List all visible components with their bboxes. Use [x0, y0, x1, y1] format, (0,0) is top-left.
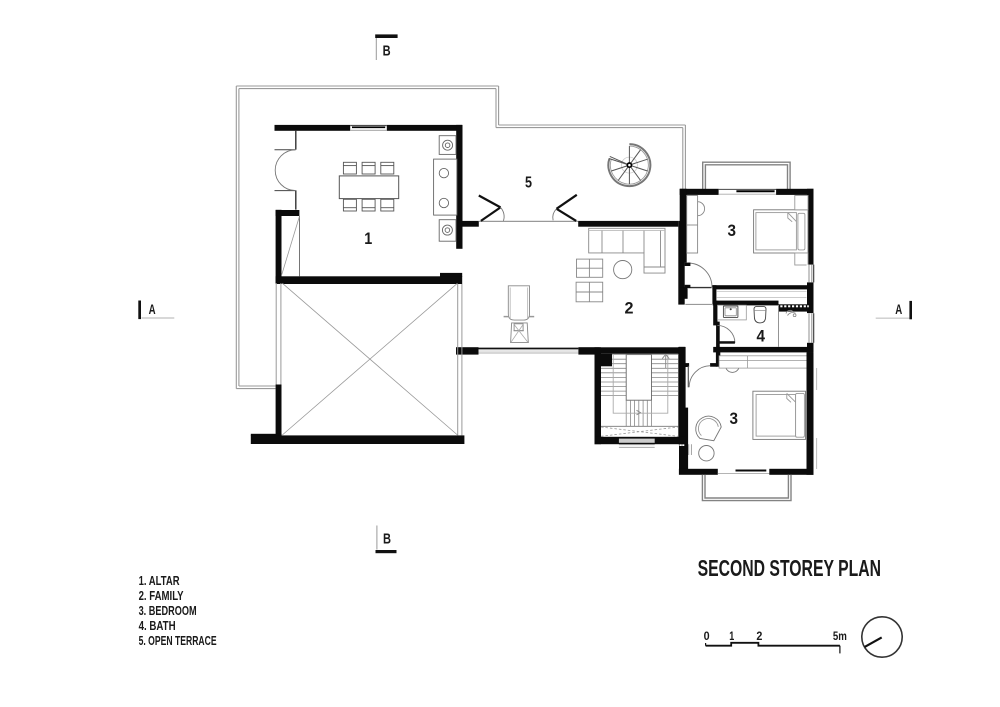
svg-text:2: 2 — [756, 631, 762, 643]
svg-text:3: 3 — [730, 410, 739, 428]
svg-text:5. OPEN TERRACE: 5. OPEN TERRACE — [139, 634, 217, 648]
svg-text:1: 1 — [729, 631, 734, 643]
svg-text:A: A — [895, 301, 902, 317]
svg-text:2: 2 — [625, 300, 634, 318]
svg-text:3: 3 — [728, 222, 737, 240]
svg-text:A: A — [149, 301, 156, 317]
svg-text:2. FAMILY: 2. FAMILY — [139, 589, 184, 603]
svg-text:B: B — [383, 531, 391, 548]
svg-text:1: 1 — [364, 230, 372, 248]
svg-text:4: 4 — [757, 328, 766, 346]
svg-text:5: 5 — [525, 175, 532, 192]
svg-text:3. BEDROOM: 3. BEDROOM — [139, 604, 197, 618]
svg-text:0: 0 — [704, 631, 710, 643]
svg-text:5m: 5m — [833, 631, 847, 643]
svg-text:B: B — [383, 43, 391, 60]
svg-text:1. ALTAR: 1. ALTAR — [139, 574, 180, 588]
svg-text:4. BATH: 4. BATH — [139, 619, 176, 633]
svg-text:SECOND STOREY PLAN: SECOND STOREY PLAN — [698, 555, 881, 581]
